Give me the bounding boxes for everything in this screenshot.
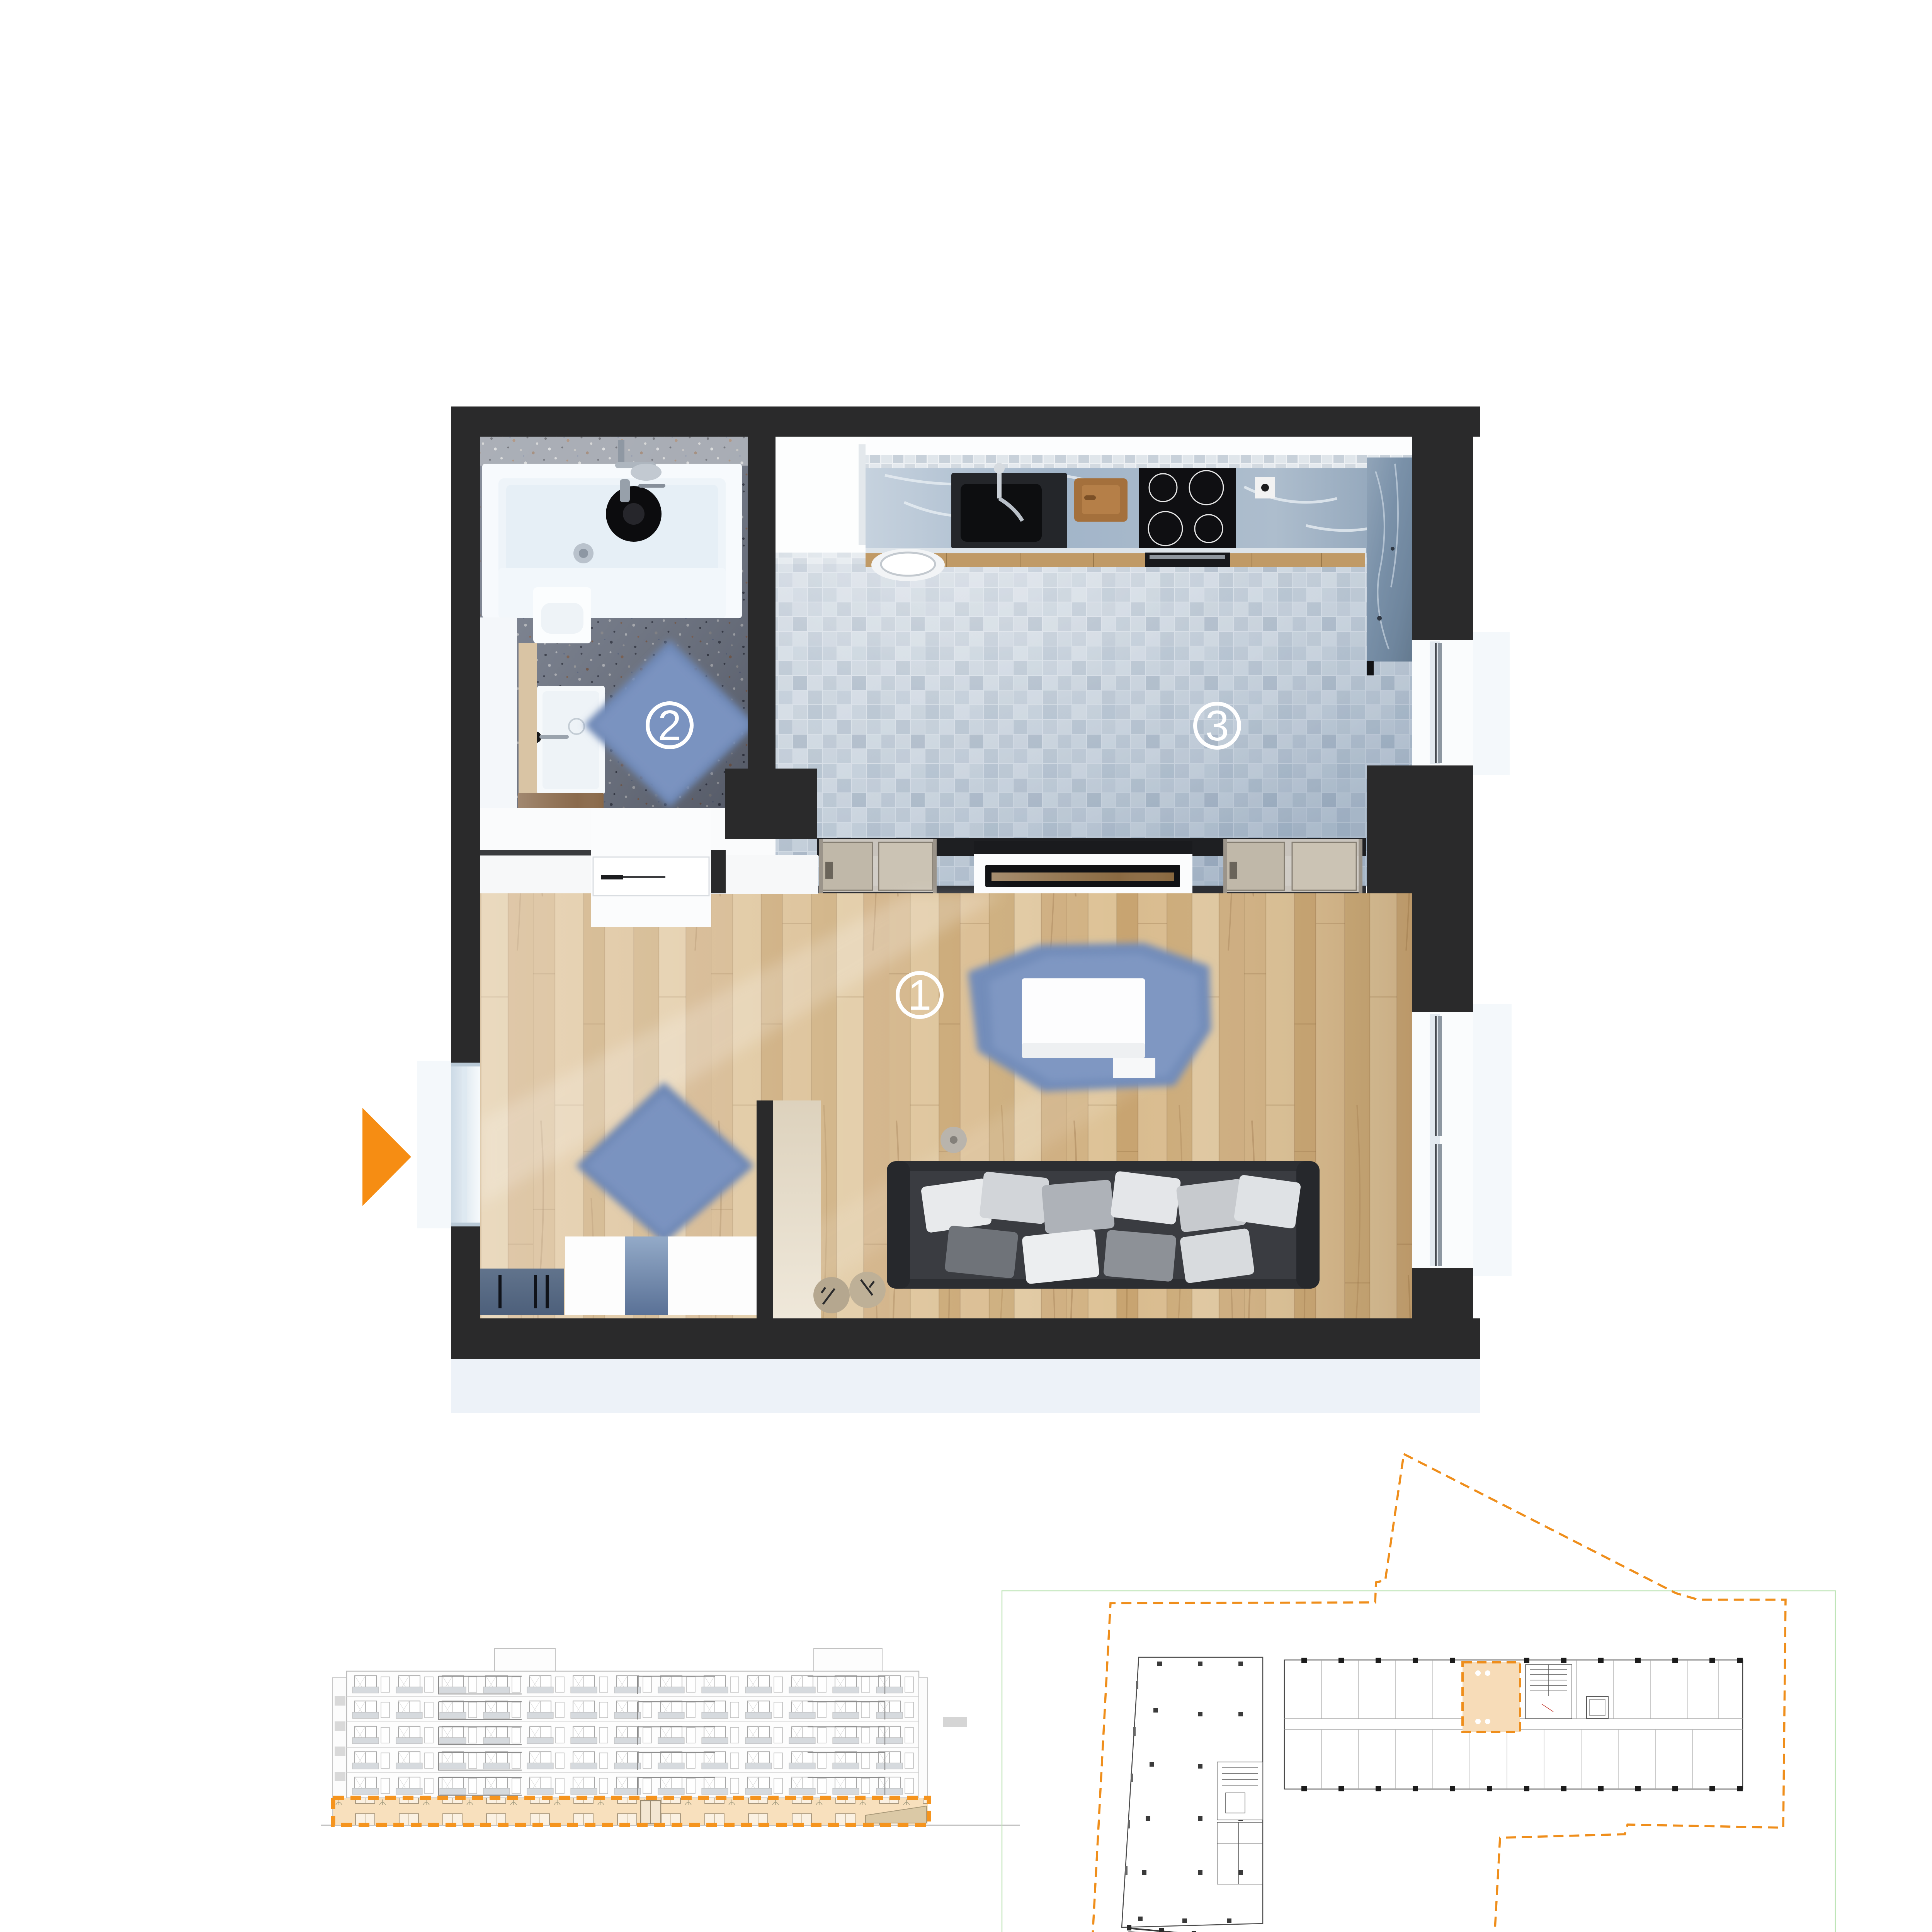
svg-text:2: 2: [658, 702, 681, 749]
svg-text:1: 1: [908, 971, 931, 1019]
svg-text:3: 3: [1205, 702, 1229, 750]
